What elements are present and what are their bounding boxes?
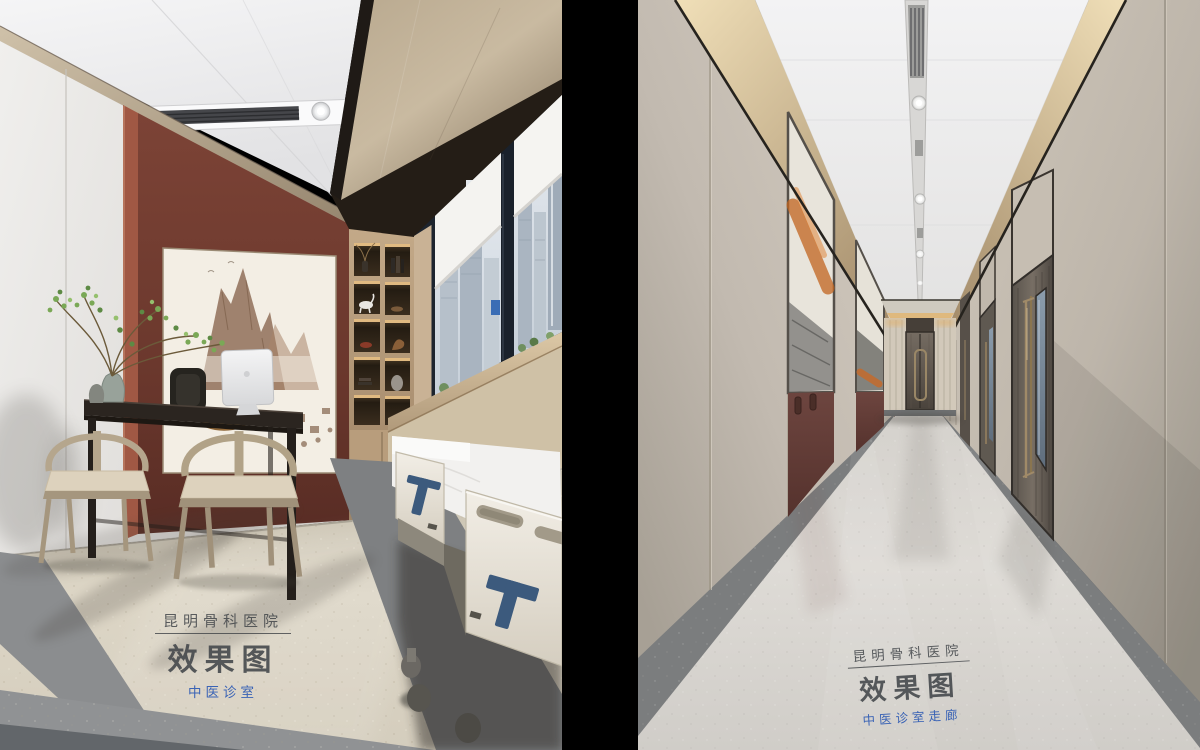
hospital-bed [392,436,562,750]
consultation-room-render [0,0,562,750]
door-vision-panel [1036,288,1046,470]
downlight [915,194,925,204]
end-cove-glow [887,313,954,318]
downlight [312,102,331,121]
corridor-end [878,300,962,425]
clinic-door-1 [1012,170,1053,539]
corridor-render [638,0,1200,750]
window-side-panel [414,224,433,407]
city-billboard [491,300,500,315]
clinic-door-2 [980,247,995,475]
downlight [912,96,926,110]
end-double-door [906,318,934,410]
presentation-board: 昆明骨科医院 效果图 中医诊室 昆明骨科医院 效果图 中医诊室走廊 [0,0,1200,750]
